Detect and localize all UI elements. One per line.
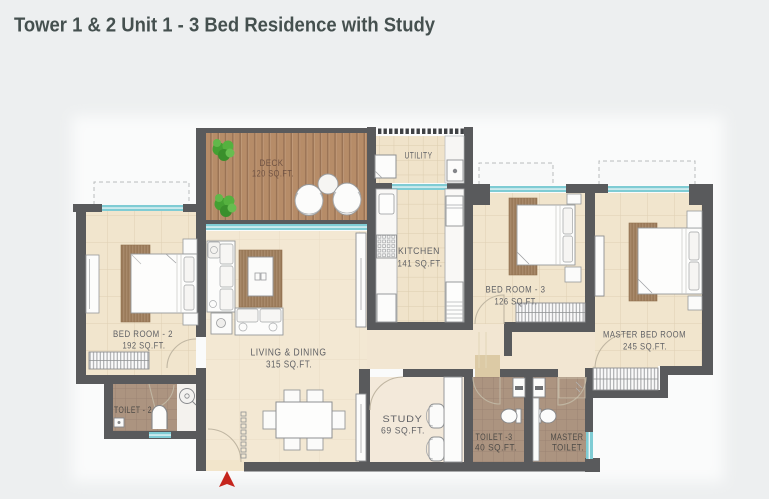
svg-text:315 SQ.FT.: 315 SQ.FT.: [266, 360, 312, 371]
svg-text:TOILET - 2: TOILET - 2: [114, 405, 152, 415]
svg-text:TOILET -3: TOILET -3: [476, 432, 513, 442]
svg-text:BED ROOM - 2: BED ROOM - 2: [113, 329, 173, 340]
svg-text:STUDY: STUDY: [383, 413, 423, 424]
svg-text:245 SQ.FT.: 245 SQ.FT.: [623, 342, 667, 353]
svg-text:DECK: DECK: [260, 158, 284, 168]
svg-text:MASTER: MASTER: [551, 432, 584, 442]
svg-text:69 SQ.FT.: 69 SQ.FT.: [381, 425, 425, 436]
svg-text:MASTER BED ROOM: MASTER BED ROOM: [603, 330, 686, 341]
svg-text:LIVING & DINING: LIVING & DINING: [251, 348, 327, 359]
svg-text:126 SQ.FT.: 126 SQ.FT.: [495, 297, 538, 308]
svg-text:Tower 1 & 2 Unit 1 - 3 Bed Res: Tower 1 & 2 Unit 1 - 3 Bed Residence wit…: [14, 14, 436, 37]
svg-text:192 SQ.FT.: 192 SQ.FT.: [123, 341, 166, 352]
svg-text:UTILITY: UTILITY: [405, 151, 433, 161]
svg-text:141 SQ.FT.: 141 SQ.FT.: [398, 258, 443, 269]
svg-text:KITCHEN: KITCHEN: [398, 245, 440, 256]
svg-text:120 SQ.FT.: 120 SQ.FT.: [252, 169, 294, 179]
svg-text:BED ROOM - 3: BED ROOM - 3: [486, 285, 546, 296]
svg-text:TOILET.: TOILET.: [552, 443, 584, 453]
svg-text:40 SQ.FT.: 40 SQ.FT.: [475, 443, 517, 453]
